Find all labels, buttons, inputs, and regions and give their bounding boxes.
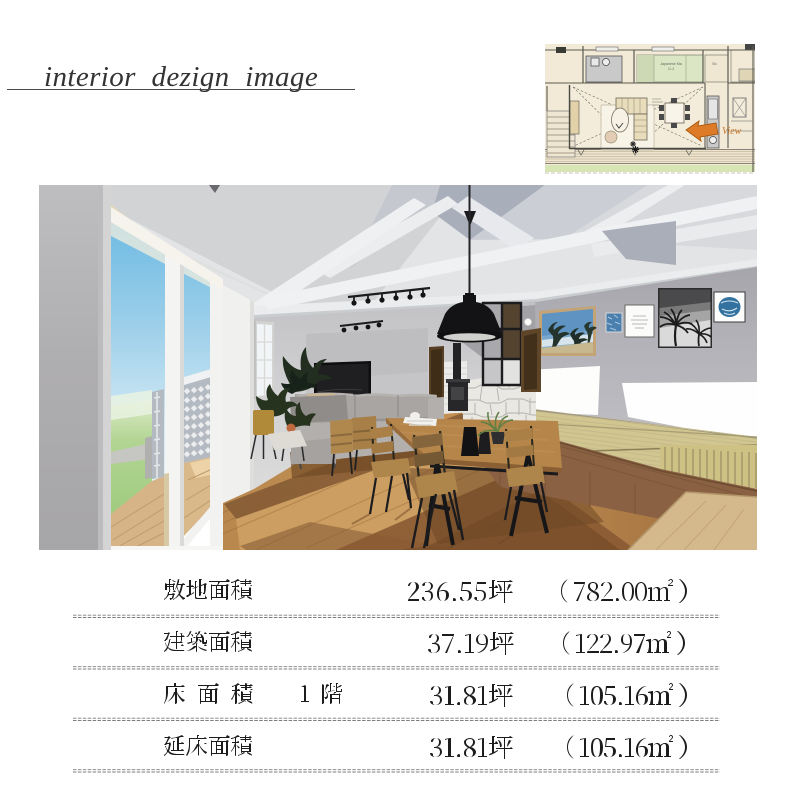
svg-text:Stk: Stk: [712, 62, 717, 66]
svg-text:View: View: [722, 126, 742, 137]
svg-text:CL3: CL3: [668, 67, 674, 71]
svg-text:Japanese Ma: Japanese Ma: [660, 62, 682, 66]
